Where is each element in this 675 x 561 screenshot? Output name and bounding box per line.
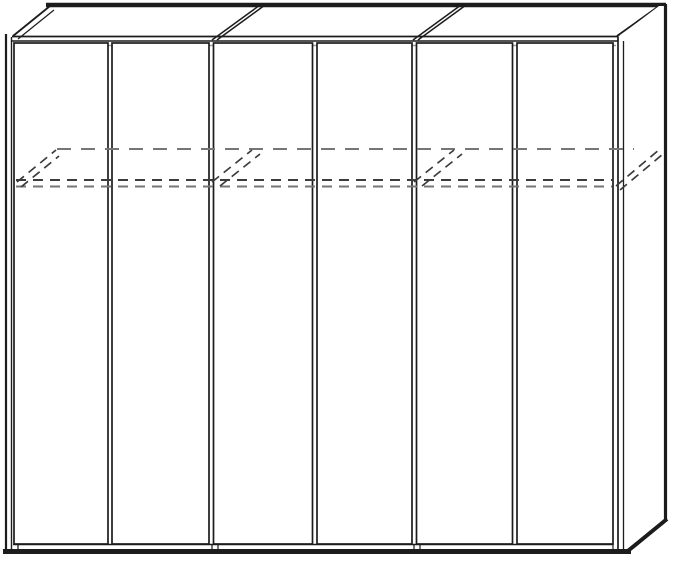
wardrobe-line-drawing [0, 0, 675, 561]
right-side-panel [618, 4, 667, 553]
wardrobe-drawing-canvas [0, 0, 675, 561]
door-1 [14, 43, 108, 544]
top-face-surface [13, 5, 666, 36]
right-side-surface [618, 6, 666, 552]
door-2 [112, 43, 209, 544]
doors [14, 43, 613, 544]
door-5 [417, 43, 513, 544]
door-4 [317, 43, 412, 544]
cabinet-top-face [12, 5, 666, 41]
door-6 [517, 43, 613, 544]
door-3 [214, 43, 313, 544]
